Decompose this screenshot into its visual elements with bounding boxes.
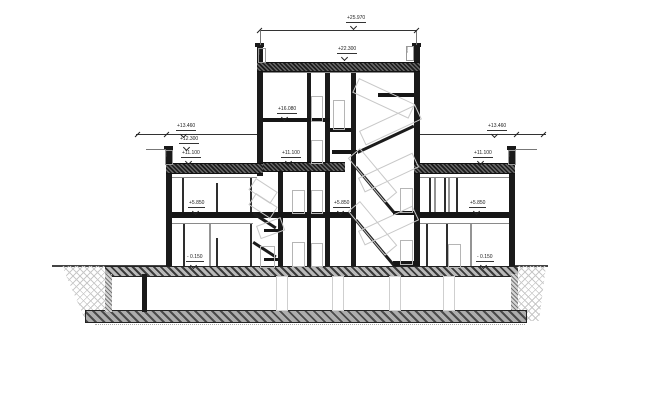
ceiling-line <box>172 177 257 178</box>
elevation-label: +5.850 <box>333 200 350 214</box>
door-outline <box>448 244 461 268</box>
elevation-label: +13.460 <box>176 123 196 137</box>
elevation-label: +11.100 <box>181 150 201 164</box>
door-outline <box>333 100 345 130</box>
ceiling-line <box>420 223 509 224</box>
partition <box>250 224 252 266</box>
extension-line <box>416 30 417 45</box>
basement-opening <box>332 276 344 311</box>
floor-slab-5850-right <box>420 212 509 218</box>
dimension-line <box>420 134 546 135</box>
partition <box>426 224 428 266</box>
basement-opening <box>389 276 401 311</box>
roof-slab-left-wing <box>166 163 263 174</box>
parapet-dimension: 600 <box>258 48 266 63</box>
partition <box>434 178 436 212</box>
elevation-label: +25.970 <box>346 15 366 29</box>
parapet-dimension: 600 <box>165 150 173 165</box>
elevation-label: +5.850 <box>469 200 486 214</box>
extension-line <box>260 30 261 45</box>
soil-line <box>95 324 525 325</box>
roof-slab-tower <box>257 62 420 72</box>
elevation-label: +12.300 <box>179 136 199 150</box>
basement-opening <box>276 276 288 311</box>
door-outline <box>292 242 305 267</box>
section-drawing: +25.970 +22.300 +16.080 +11.100 +5.850 +… <box>0 0 650 410</box>
foundation-slab <box>85 310 527 323</box>
floor-slab-11100 <box>263 162 345 172</box>
basement-wall <box>511 274 518 310</box>
basement-opening <box>443 276 455 311</box>
elevation-label: +13.460 <box>487 123 507 137</box>
elevation-label: - 0.150 <box>186 254 204 268</box>
stair-railing <box>352 78 415 119</box>
basement-wall <box>142 274 147 312</box>
basement-wall <box>105 274 112 312</box>
partition <box>470 224 472 266</box>
elevation-label: - 0.150 <box>476 254 494 268</box>
roof-slab-right-wing <box>414 163 515 174</box>
dimension-line <box>136 134 257 135</box>
partition <box>216 183 218 212</box>
elevation-label: +22.300 <box>337 46 357 60</box>
partition <box>456 178 458 212</box>
elevation-label: +16.080 <box>277 106 297 120</box>
partition <box>183 224 185 266</box>
door-outline <box>311 140 323 164</box>
dimension-line <box>260 30 417 31</box>
wall-tower-right <box>414 47 420 266</box>
partition <box>444 178 446 212</box>
elevation-label: +5.850 <box>188 200 205 214</box>
elevation-label: +11.100 <box>473 150 493 164</box>
partition <box>429 178 431 212</box>
door-outline <box>311 190 323 214</box>
parapet-dimension: 600 <box>508 150 516 165</box>
partition <box>209 224 211 266</box>
door-outline <box>400 188 413 213</box>
parapet-line <box>515 149 537 150</box>
elevation-label: +11.100 <box>281 150 301 164</box>
parapet-dimension: 600 <box>406 46 414 61</box>
ceiling-line <box>263 72 414 73</box>
door-outline <box>311 243 323 267</box>
door-outline <box>400 240 413 265</box>
door-outline <box>311 96 323 122</box>
partition <box>448 178 450 212</box>
partition <box>216 238 218 266</box>
door-outline <box>292 190 305 214</box>
parapet-line <box>146 149 166 150</box>
partition <box>182 178 184 212</box>
door-outline <box>260 246 275 268</box>
